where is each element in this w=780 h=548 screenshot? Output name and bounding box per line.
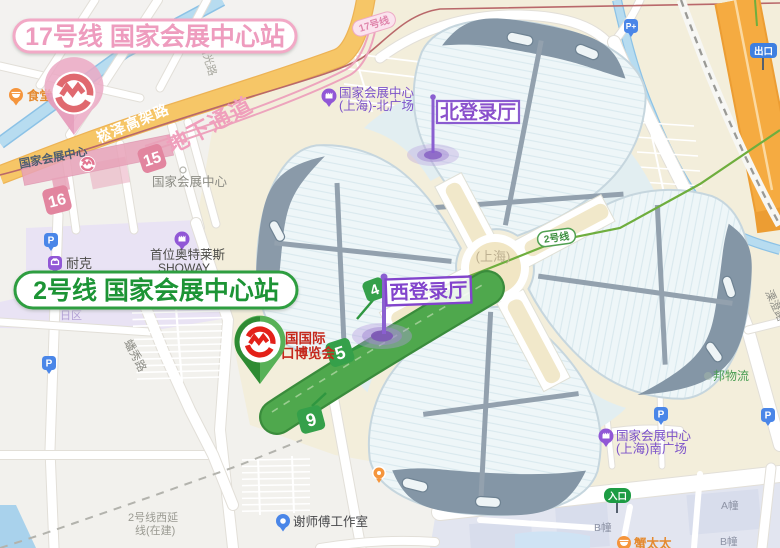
svg-text:(上海)-北广场: (上海)-北广场: [339, 98, 414, 113]
svg-text:邦物流: 邦物流: [713, 369, 749, 383]
svg-text:入口: 入口: [607, 492, 627, 503]
svg-text:P: P: [765, 411, 772, 422]
svg-text:P+: P+: [626, 21, 637, 31]
svg-text:国国际: 国国际: [285, 331, 326, 346]
svg-text:蟹太太: 蟹太太: [633, 536, 672, 548]
svg-text:P: P: [658, 410, 665, 421]
svg-text:2号线西延: 2号线西延: [128, 510, 178, 524]
svg-text:B幢: B幢: [720, 535, 738, 548]
svg-text:日区: 日区: [60, 310, 82, 322]
svg-text:国家会展中心: 国家会展中心: [152, 174, 228, 189]
svg-text:口博览会: 口博览会: [281, 345, 335, 361]
svg-text:首位奥特莱斯: 首位奥特莱斯: [150, 247, 225, 262]
svg-text:(上海)南广场: (上海)南广场: [616, 441, 687, 456]
svg-text:西登录厅: 西登录厅: [389, 279, 468, 305]
svg-text:出口: 出口: [754, 46, 773, 58]
svg-text:2号线 国家会展中心站: 2号线 国家会展中心站: [33, 276, 279, 305]
svg-text:国家会展中心: 国家会展中心: [616, 428, 692, 443]
svg-text:国家会展中心: 国家会展中心: [339, 85, 415, 100]
svg-text:耐克: 耐克: [66, 256, 92, 271]
svg-text:17号线 国家会展中心站: 17号线 国家会展中心站: [25, 22, 285, 51]
svg-text:北登录厅: 北登录厅: [440, 101, 516, 124]
svg-text:线(在建): 线(在建): [135, 523, 175, 537]
svg-text:谢师傅工作室: 谢师傅工作室: [293, 514, 368, 529]
svg-text:(上海): (上海): [476, 249, 511, 264]
svg-text:P: P: [48, 236, 55, 247]
svg-text:A幢: A幢: [721, 499, 739, 512]
svg-text:B幢: B幢: [594, 521, 612, 534]
svg-text:P: P: [46, 359, 53, 370]
